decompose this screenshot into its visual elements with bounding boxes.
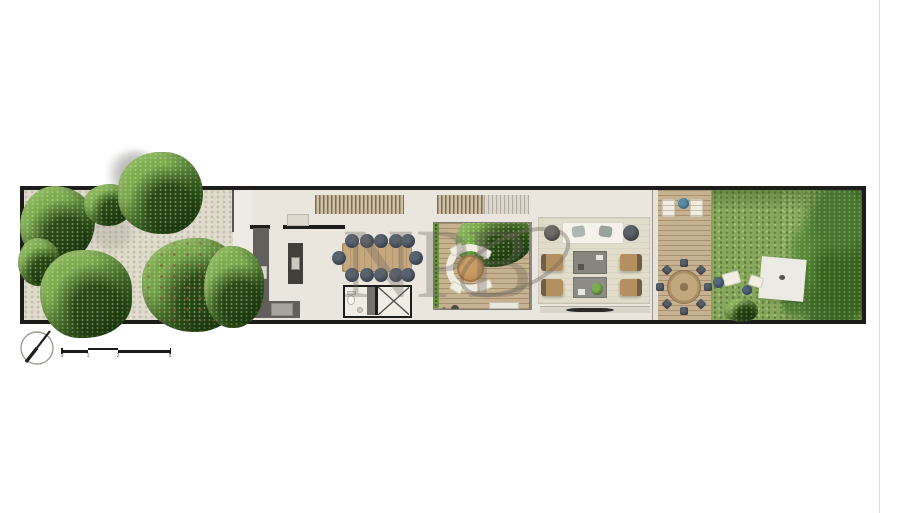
scale-bar: 0 1 2 5	[60, 344, 178, 360]
lawn-bush	[724, 298, 758, 322]
blue-side-table	[678, 198, 689, 209]
kitchen-door-opening	[270, 225, 283, 229]
watermark-letter: B	[466, 208, 533, 319]
island-sink	[291, 257, 300, 270]
scale-segment-raised	[88, 348, 118, 351]
patio-chair	[656, 283, 664, 291]
entry-bench	[287, 214, 309, 226]
scale-label: 1	[84, 354, 92, 359]
patio-chair	[680, 307, 688, 315]
scale-label: 0	[58, 354, 66, 359]
watermark-letter: P	[415, 208, 471, 319]
scale-label: 5	[166, 354, 174, 359]
patio-chair	[704, 283, 712, 291]
picnic-blanket	[758, 256, 806, 302]
sun-lounger	[690, 199, 703, 217]
scale-segment	[118, 350, 170, 353]
north-arrow	[17, 329, 61, 371]
garden-tree	[40, 250, 132, 338]
stove	[271, 303, 293, 316]
pouf	[742, 285, 752, 295]
pouf	[713, 277, 724, 288]
round-side-table	[623, 225, 639, 241]
garden-tree-overhang	[118, 152, 203, 234]
sun-lounger	[662, 199, 675, 217]
kitchen-island	[288, 243, 303, 284]
watermark-logo: N P B	[320, 185, 590, 320]
entry-tree	[204, 246, 264, 328]
sofa-pillow	[598, 225, 612, 238]
picnic-item	[779, 275, 785, 281]
page-edge-line	[879, 0, 880, 513]
watermark-letter: N	[342, 208, 414, 319]
scale-label: 2	[114, 354, 122, 359]
floor-plan-canvas: N P B 0 1 2 5	[0, 0, 900, 513]
scale-segment	[62, 350, 88, 353]
table-decor	[596, 255, 603, 260]
indoor-plant	[591, 283, 603, 295]
entry-gate-wall	[232, 190, 234, 232]
armchair	[620, 279, 642, 296]
armchair	[620, 254, 642, 271]
round-patio-table	[667, 270, 701, 304]
patio-chair	[680, 259, 688, 267]
